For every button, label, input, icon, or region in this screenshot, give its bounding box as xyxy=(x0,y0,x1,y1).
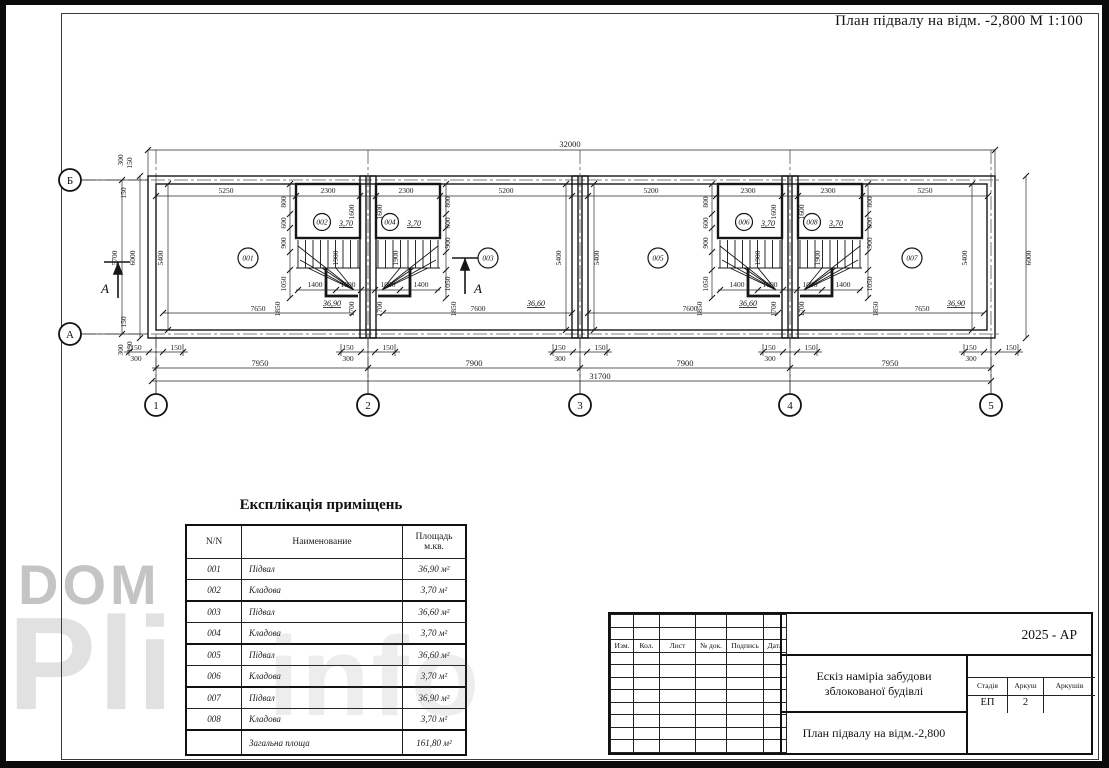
revision-cell xyxy=(634,627,660,640)
revision-cell xyxy=(611,652,634,665)
explication-row: 001Підвал36,90 м² xyxy=(186,559,466,580)
revision-cell xyxy=(634,727,660,740)
revision-cell xyxy=(727,702,764,715)
title-block: Изм.Кол.Лист№ док.ПодписьДата 2025 - АР … xyxy=(608,612,1093,755)
explication-row: 007Підвал36,90 м² xyxy=(186,687,466,709)
title-block-right: 2025 - АР Ескіз наміріа забудови зблоков… xyxy=(780,614,1093,753)
revision-col-header: Кол. xyxy=(634,640,660,653)
explication-row: 003Підвал36,60 м² xyxy=(186,601,466,623)
plan-title: План підвалу на відм. -2,800 М 1:100 xyxy=(835,13,1083,30)
revision-cell xyxy=(696,690,727,703)
revision-cell xyxy=(696,627,727,640)
explication-row: 002Кладова3,70 м² xyxy=(186,580,466,602)
col-header-area: Площадь м.кв. xyxy=(403,525,467,559)
revision-cell xyxy=(634,677,660,690)
room-name: Підвал xyxy=(242,559,403,580)
room-name: Підвал xyxy=(242,644,403,666)
room-number: 001 xyxy=(186,559,242,580)
explication-row: 008Кладова3,70 м² xyxy=(186,709,466,731)
revision-cell xyxy=(634,615,660,628)
sheet-label: Аркуш xyxy=(1008,678,1044,695)
revision-cell xyxy=(727,677,764,690)
revision-cell xyxy=(660,702,696,715)
total-row: Загальна площа161,80 м² xyxy=(186,730,466,755)
revision-col-header: Изм. xyxy=(611,640,634,653)
revision-cell xyxy=(611,627,634,640)
revision-cell xyxy=(660,740,696,753)
stage-value: ЕП xyxy=(968,694,1008,713)
revision-cell xyxy=(660,727,696,740)
revision-cell xyxy=(696,665,727,678)
stage-sheet-cells: Стадія Аркуш Аркушів ЕП 2 xyxy=(966,656,1093,713)
revision-cell xyxy=(696,727,727,740)
project-code: 2025 - АР xyxy=(782,614,1093,656)
revision-col-header: Лист xyxy=(660,640,696,653)
room-area: 36,60 м² xyxy=(403,601,467,623)
room-name: Кладова xyxy=(242,666,403,688)
room-number: 008 xyxy=(186,709,242,731)
room-name: Підвал xyxy=(242,687,403,709)
revision-cell xyxy=(634,715,660,728)
room-area: 3,70 м² xyxy=(403,623,467,645)
room-area: 3,70 м² xyxy=(403,666,467,688)
revision-cell xyxy=(611,715,634,728)
revision-cell xyxy=(611,727,634,740)
room-name: Підвал xyxy=(242,601,403,623)
explication-block: Експлікація приміщень N/N Наименование П… xyxy=(185,497,457,756)
revision-cell xyxy=(727,652,764,665)
room-area: 3,70 м² xyxy=(403,580,467,602)
revision-cell xyxy=(696,740,727,753)
explication-row: 006Кладова3,70 м² xyxy=(186,666,466,688)
room-number: 007 xyxy=(186,687,242,709)
room-number: 002 xyxy=(186,580,242,602)
revision-cell xyxy=(727,727,764,740)
revision-cell xyxy=(611,665,634,678)
explication-table: N/N Наименование Площадь м.кв. 001Підвал… xyxy=(185,524,467,756)
revision-cell xyxy=(696,715,727,728)
revision-cell xyxy=(696,677,727,690)
total-label: Загальна площа xyxy=(242,730,403,755)
revision-cell xyxy=(660,715,696,728)
revision-cell xyxy=(727,665,764,678)
revision-cell xyxy=(727,615,764,628)
room-area: 3,70 м² xyxy=(403,709,467,731)
project-name: Ескіз наміріа забудови зблокованої будів… xyxy=(782,656,966,713)
revision-cell xyxy=(611,740,634,753)
revision-cell xyxy=(611,690,634,703)
revision-cell xyxy=(727,627,764,640)
sheet-value: 2 xyxy=(1008,694,1044,713)
room-area: 36,60 м² xyxy=(403,644,467,666)
col-header-nn: N/N xyxy=(186,525,242,559)
sheets-label: Аркушів xyxy=(1044,678,1095,695)
room-number: 003 xyxy=(186,601,242,623)
revision-cell xyxy=(727,715,764,728)
revision-cell xyxy=(634,652,660,665)
revision-cell xyxy=(660,665,696,678)
revision-cell xyxy=(611,702,634,715)
explication-title: Експлікація приміщень xyxy=(185,497,457,514)
col-header-name: Наименование xyxy=(242,525,403,559)
revision-cell xyxy=(660,615,696,628)
revision-cell xyxy=(660,652,696,665)
revision-cell xyxy=(660,677,696,690)
revision-grid: Изм.Кол.Лист№ док.ПодписьДата xyxy=(610,614,780,753)
room-name: Кладова xyxy=(242,709,403,731)
revision-col-header: № док. xyxy=(696,640,727,653)
stage-label: Стадія xyxy=(968,678,1008,695)
drawing-title: План підвалу на відм.-2,800 xyxy=(782,713,966,753)
empty-cell xyxy=(966,713,1093,753)
room-name: Кладова xyxy=(242,623,403,645)
room-number: 005 xyxy=(186,644,242,666)
revision-cell xyxy=(660,627,696,640)
room-number: 004 xyxy=(186,623,242,645)
explication-row: 004Кладова3,70 м² xyxy=(186,623,466,645)
revision-col-header: Подпись xyxy=(727,640,764,653)
revision-cell xyxy=(696,652,727,665)
revision-cell xyxy=(727,690,764,703)
revision-cell xyxy=(634,665,660,678)
revision-cell xyxy=(634,702,660,715)
revision-cell xyxy=(634,690,660,703)
revision-cell xyxy=(660,690,696,703)
explication-row: 005Підвал36,60 м² xyxy=(186,644,466,666)
room-number: 006 xyxy=(186,666,242,688)
room-area: 36,90 м² xyxy=(403,687,467,709)
sheets-value xyxy=(1044,694,1095,713)
room-name: Кладова xyxy=(242,580,403,602)
revision-cell xyxy=(634,740,660,753)
room-area: 36,90 м² xyxy=(403,559,467,580)
total-value: 161,80 м² xyxy=(403,730,467,755)
revision-cell xyxy=(611,615,634,628)
revision-cell xyxy=(611,677,634,690)
revision-cell xyxy=(696,615,727,628)
revision-cell xyxy=(727,740,764,753)
revision-cell xyxy=(696,702,727,715)
